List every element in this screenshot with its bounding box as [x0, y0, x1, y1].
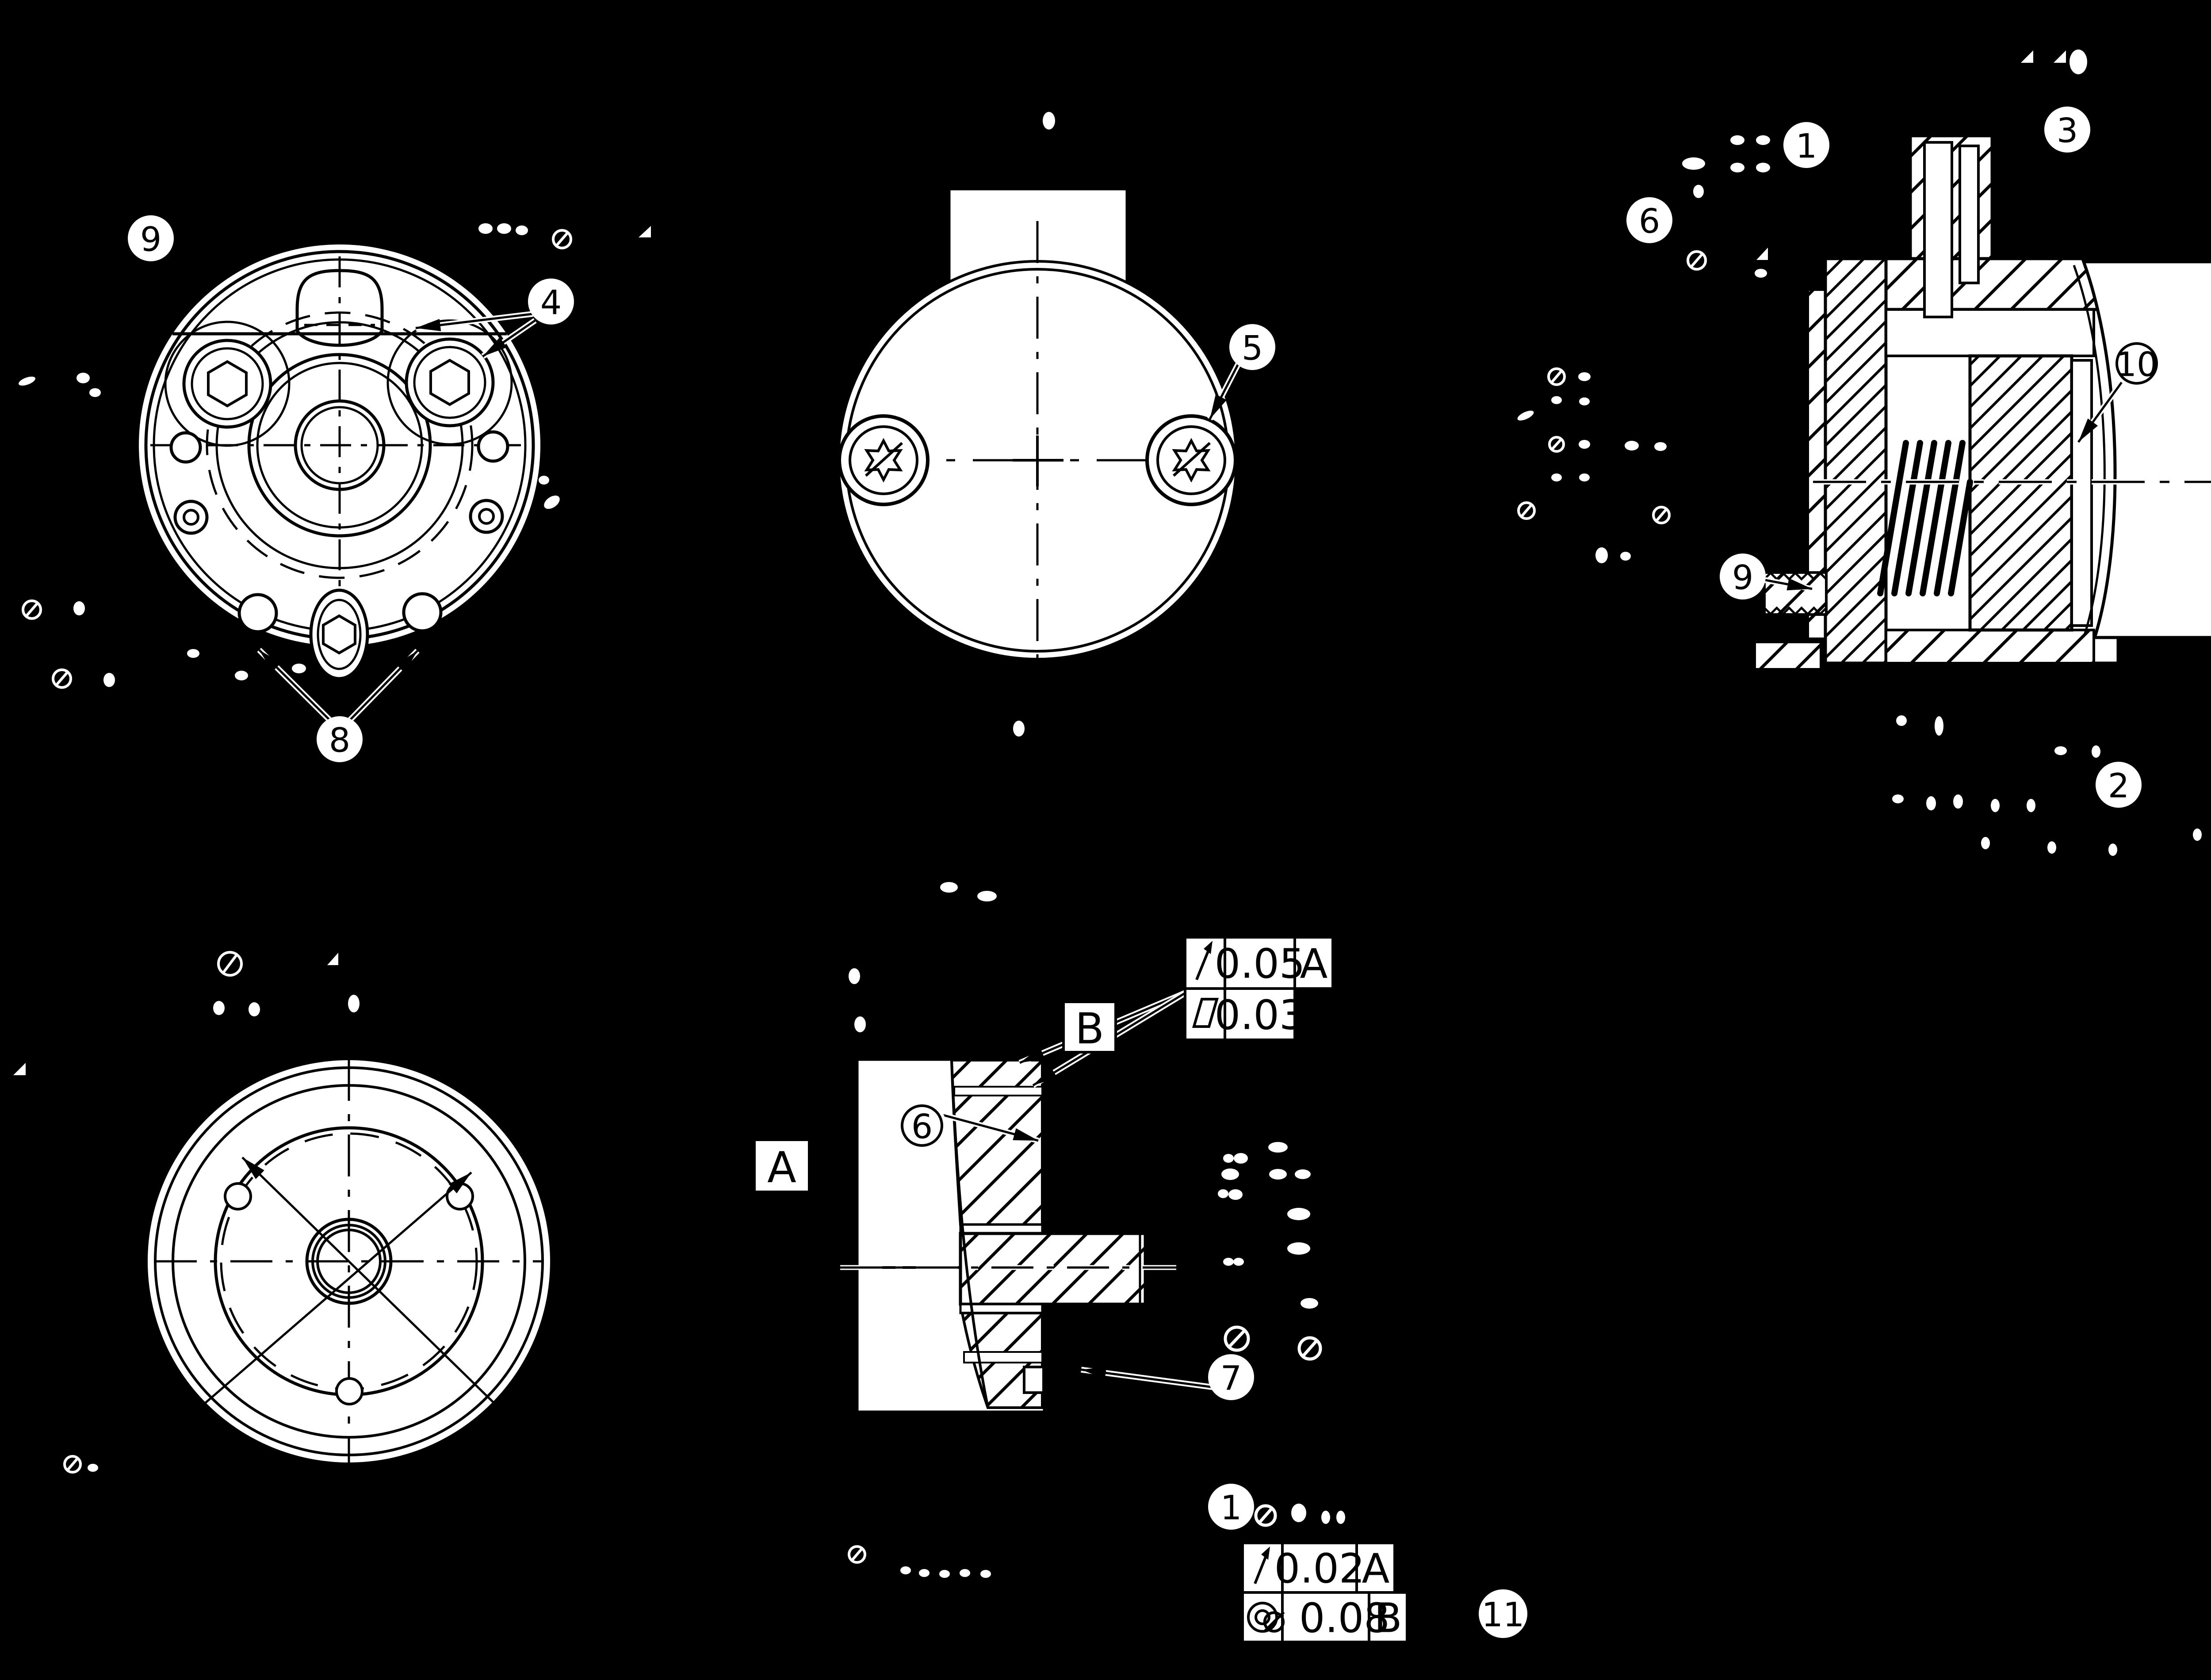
- svg-text:4: 4: [540, 283, 562, 322]
- side-view-top-middle: [838, 189, 1241, 681]
- gdt-lower-datum-1: A: [1362, 1545, 1390, 1592]
- gdt-frame-lower: 0.02 A ⌀ 0.08 B: [1243, 1543, 1407, 1642]
- gdt-upper-datum-1: A: [1300, 940, 1328, 988]
- balloon-5: 5: [1229, 324, 1275, 370]
- balloon-1-section: 1: [1783, 122, 1829, 168]
- gdt-lower-value-2: ⌀ 0.08: [1262, 1595, 1389, 1642]
- gdt-upper-value-2: 0.03: [1215, 992, 1305, 1039]
- balloon-10: 10: [2112, 339, 2161, 388]
- hex-socket-screw-bottom: [311, 590, 367, 679]
- pin-hole: [404, 594, 441, 631]
- datum-b-text: B: [1075, 1004, 1104, 1054]
- hex-socket-screw: [165, 322, 289, 446]
- balloon-8: 8: [317, 716, 363, 762]
- balloon-6-bottom: 6: [898, 1101, 946, 1150]
- side-hole: [478, 432, 508, 461]
- balloon-1-bottom: 1: [1208, 1484, 1254, 1530]
- side-hole: [171, 433, 200, 462]
- svg-text:6: 6: [911, 1107, 933, 1146]
- svg-text:2: 2: [2108, 766, 2129, 806]
- svg-text:1: 1: [1796, 126, 1817, 166]
- svg-text:3: 3: [2057, 111, 2078, 150]
- torx-screw: [1147, 416, 1236, 504]
- balloon-11: 11: [1479, 1589, 1527, 1638]
- svg-text:5: 5: [1242, 328, 1263, 368]
- balloon-9-front: 9: [128, 215, 174, 261]
- section-view-top-right: [1755, 136, 2211, 669]
- svg-text:7: 7: [1220, 1359, 1242, 1398]
- balloon-6-section: 6: [1626, 197, 1672, 243]
- hex-socket-screw: [388, 321, 512, 444]
- side-hole-counterbored: [471, 500, 502, 532]
- datum-label-A: A: [754, 1140, 809, 1192]
- svg-text:1: 1: [1220, 1488, 1242, 1527]
- balloon-2: 2: [2096, 762, 2142, 808]
- torx-screw: [839, 416, 928, 504]
- pin-hole: [239, 595, 276, 632]
- svg-text:6: 6: [1639, 202, 1660, 241]
- back-view-bottom-left: [148, 1059, 550, 1466]
- small-hole: [447, 1184, 473, 1209]
- front-view-top-left: [139, 244, 540, 720]
- datum-label-B: B: [1063, 1002, 1116, 1054]
- svg-text:9: 9: [140, 220, 161, 259]
- balloon-7: 7: [1208, 1354, 1254, 1400]
- svg-text:9: 9: [1732, 558, 1753, 597]
- drawing-canvas: A B 0.05 A 0.03 0.02 A: [0, 0, 2211, 1680]
- svg-text:8: 8: [329, 721, 350, 760]
- svg-text:11: 11: [1482, 1595, 1525, 1634]
- balloon-9-section: 9: [1720, 554, 1766, 599]
- threaded-stud: [1755, 642, 1821, 669]
- small-hole: [225, 1184, 251, 1209]
- gdt-frame-upper: 0.05 A 0.03: [1185, 937, 1333, 1040]
- gdt-upper-value-1: 0.05: [1215, 940, 1305, 988]
- svg-text:10: 10: [2115, 345, 2158, 384]
- balloon-4: 4: [528, 279, 574, 325]
- section-view-bottom-middle: [840, 993, 1220, 1412]
- gdt-lower-datum-2: B: [1374, 1595, 1402, 1642]
- leader-balloon-7: [1081, 1370, 1220, 1388]
- side-hole-counterbored: [175, 501, 207, 533]
- balloon-3: 3: [2044, 107, 2090, 153]
- datum-a-text: A: [767, 1143, 796, 1192]
- small-hole: [337, 1378, 362, 1404]
- gdt-lower-value-1: 0.02: [1274, 1545, 1365, 1592]
